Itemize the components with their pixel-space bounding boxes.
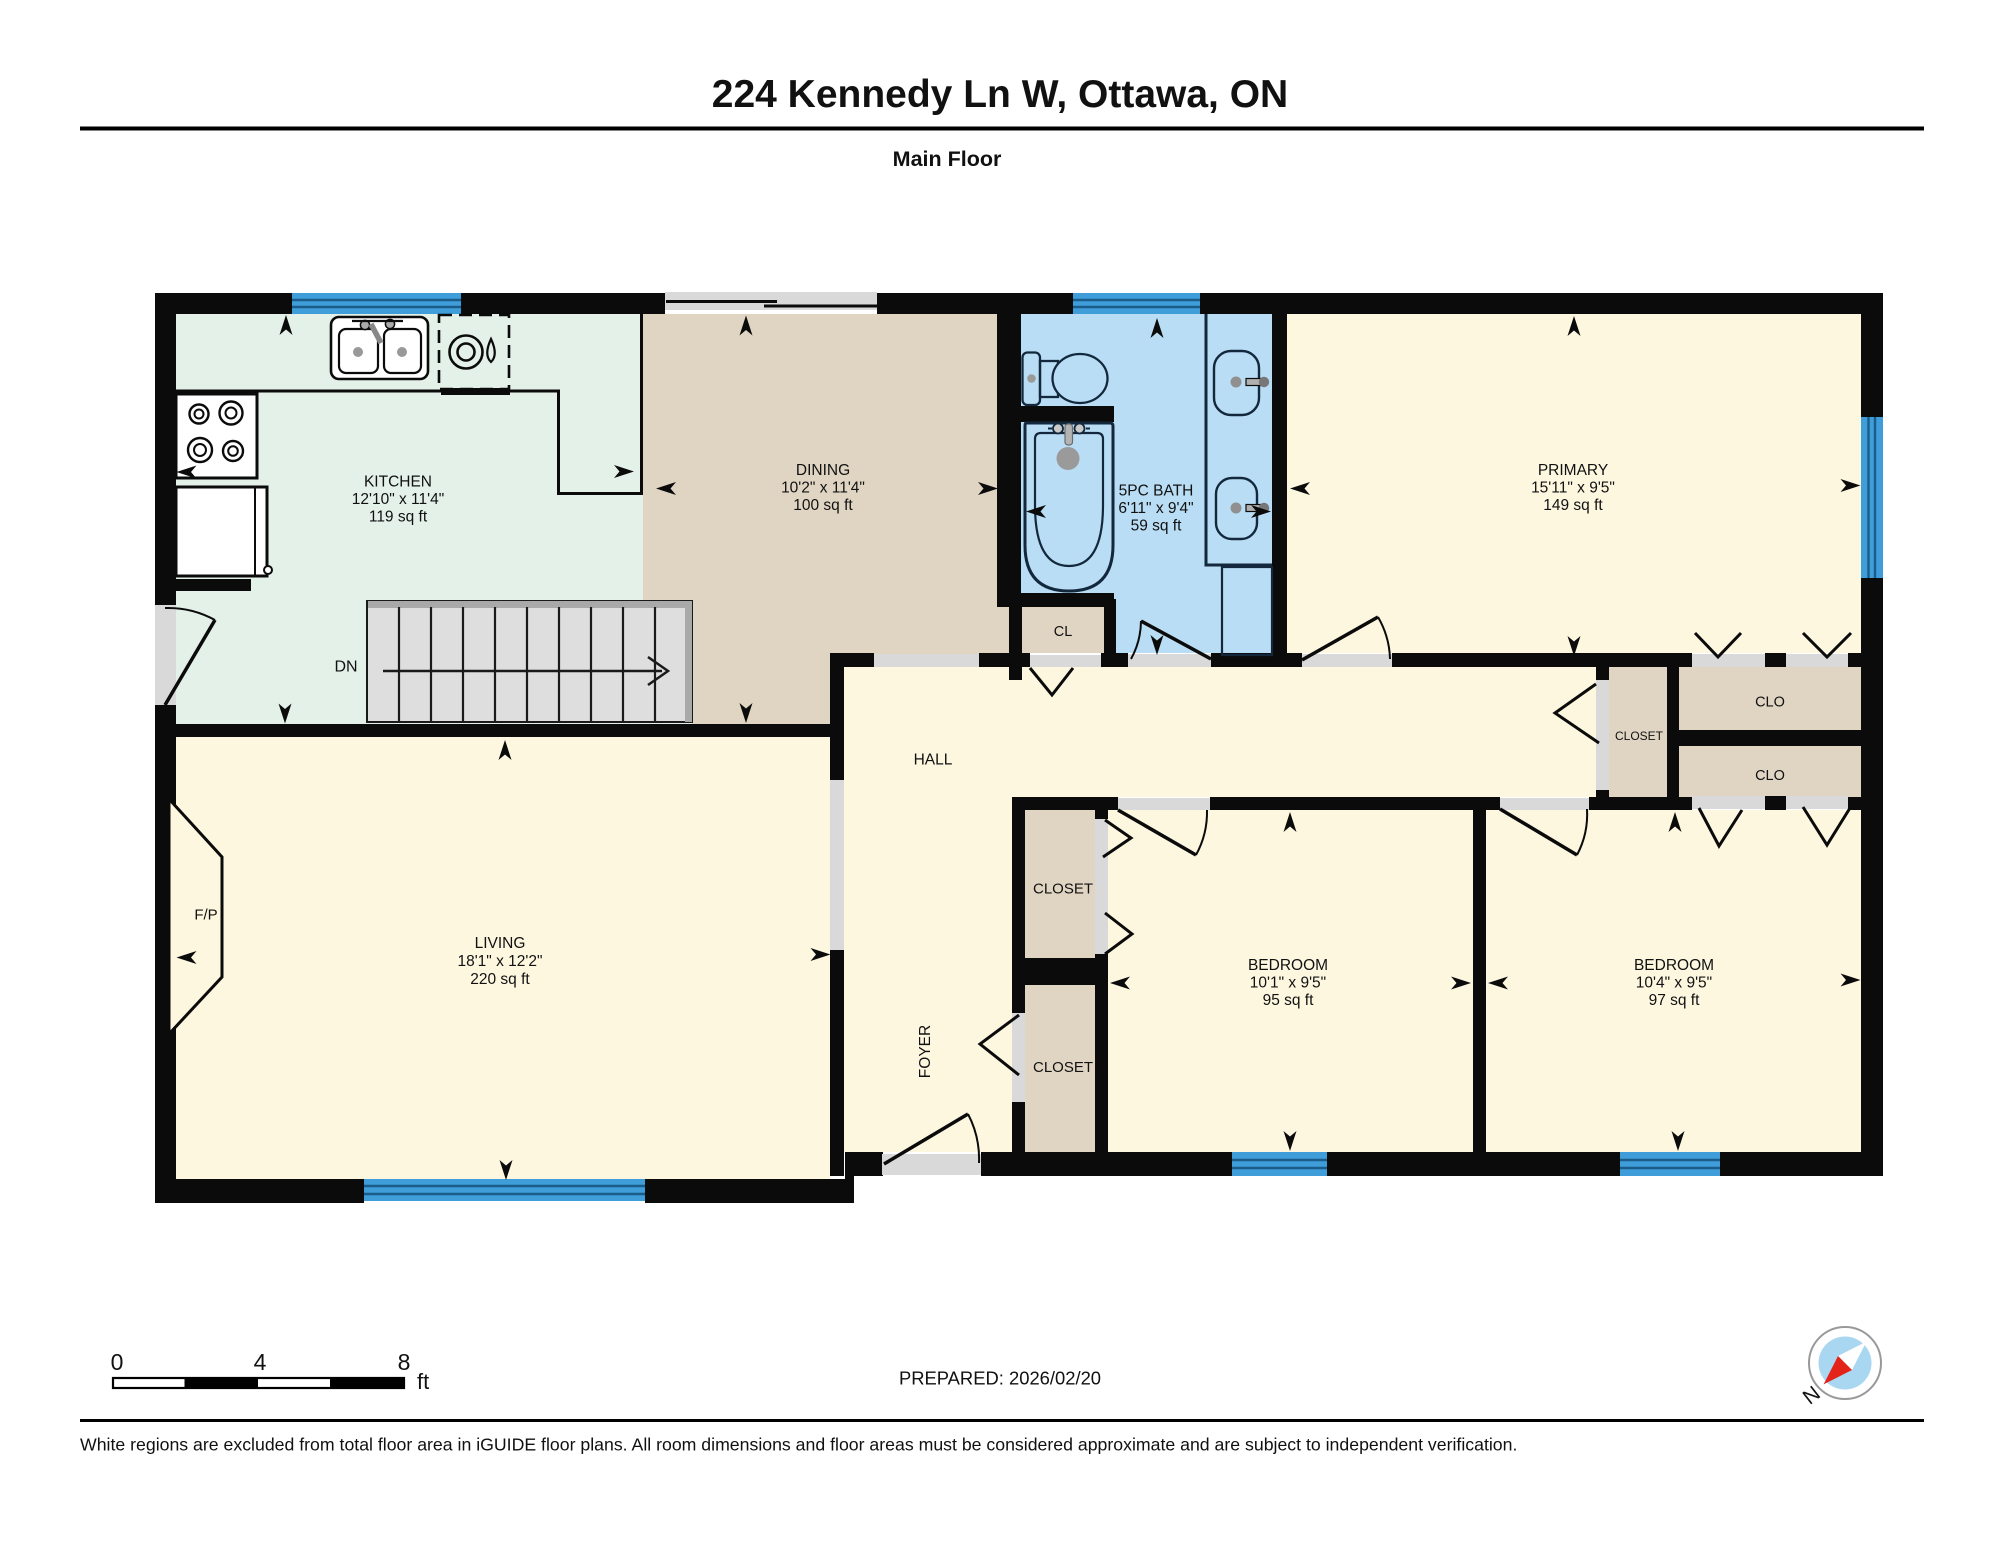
svg-text:BEDROOM: BEDROOM (1634, 957, 1714, 974)
svg-text:CL: CL (1054, 624, 1073, 640)
svg-text:DN: DN (334, 659, 357, 676)
svg-text:4: 4 (254, 1349, 267, 1375)
svg-text:119 sq ft: 119 sq ft (369, 509, 428, 526)
svg-text:ft: ft (417, 1369, 429, 1394)
svg-text:8: 8 (398, 1349, 411, 1375)
svg-text:F/P: F/P (194, 907, 217, 924)
svg-text:CLOSET: CLOSET (1615, 729, 1664, 743)
svg-text:White regions are excluded fro: White regions are excluded from total fl… (80, 1435, 1517, 1455)
svg-text:149 sq ft: 149 sq ft (1543, 497, 1603, 514)
svg-text:95 sq ft: 95 sq ft (1263, 992, 1315, 1009)
svg-text:PRIMARY: PRIMARY (1538, 462, 1608, 479)
svg-text:FOYER: FOYER (917, 1025, 934, 1078)
svg-text:0: 0 (111, 1349, 124, 1375)
svg-text:5PC BATH: 5PC BATH (1119, 483, 1194, 500)
svg-text:15'11" x 9'5": 15'11" x 9'5" (1531, 480, 1615, 497)
svg-text:KITCHEN: KITCHEN (364, 474, 432, 491)
svg-text:CLOSET: CLOSET (1033, 881, 1093, 898)
svg-text:PREPARED: 2026/02/20: PREPARED: 2026/02/20 (899, 1368, 1101, 1389)
svg-text:CLOSET: CLOSET (1033, 1059, 1093, 1076)
svg-text:10'1" x 9'5": 10'1" x 9'5" (1250, 975, 1326, 992)
svg-text:BEDROOM: BEDROOM (1248, 957, 1328, 974)
svg-text:10'2" x 11'4": 10'2" x 11'4" (781, 480, 865, 497)
svg-text:97 sq ft: 97 sq ft (1649, 992, 1701, 1009)
svg-text:59 sq ft: 59 sq ft (1131, 518, 1183, 535)
svg-text:Main Floor: Main Floor (893, 147, 1002, 171)
svg-text:HALL: HALL (914, 752, 953, 769)
svg-text:6'11" x 9'4": 6'11" x 9'4" (1118, 500, 1193, 517)
svg-text:CLO: CLO (1755, 768, 1785, 784)
svg-text:100 sq ft: 100 sq ft (793, 497, 853, 514)
svg-text:18'1" x 12'2": 18'1" x 12'2" (457, 953, 542, 970)
svg-text:DINING: DINING (796, 462, 850, 479)
svg-text:220 sq ft: 220 sq ft (470, 971, 530, 988)
svg-text:224 Kennedy Ln W, Ottawa, ON: 224 Kennedy Ln W, Ottawa, ON (712, 73, 1288, 116)
svg-text:CLO: CLO (1755, 695, 1785, 711)
svg-text:10'4" x 9'5": 10'4" x 9'5" (1636, 975, 1712, 992)
svg-text:12'10" x 11'4": 12'10" x 11'4" (352, 491, 444, 508)
svg-text:LIVING: LIVING (475, 935, 526, 952)
